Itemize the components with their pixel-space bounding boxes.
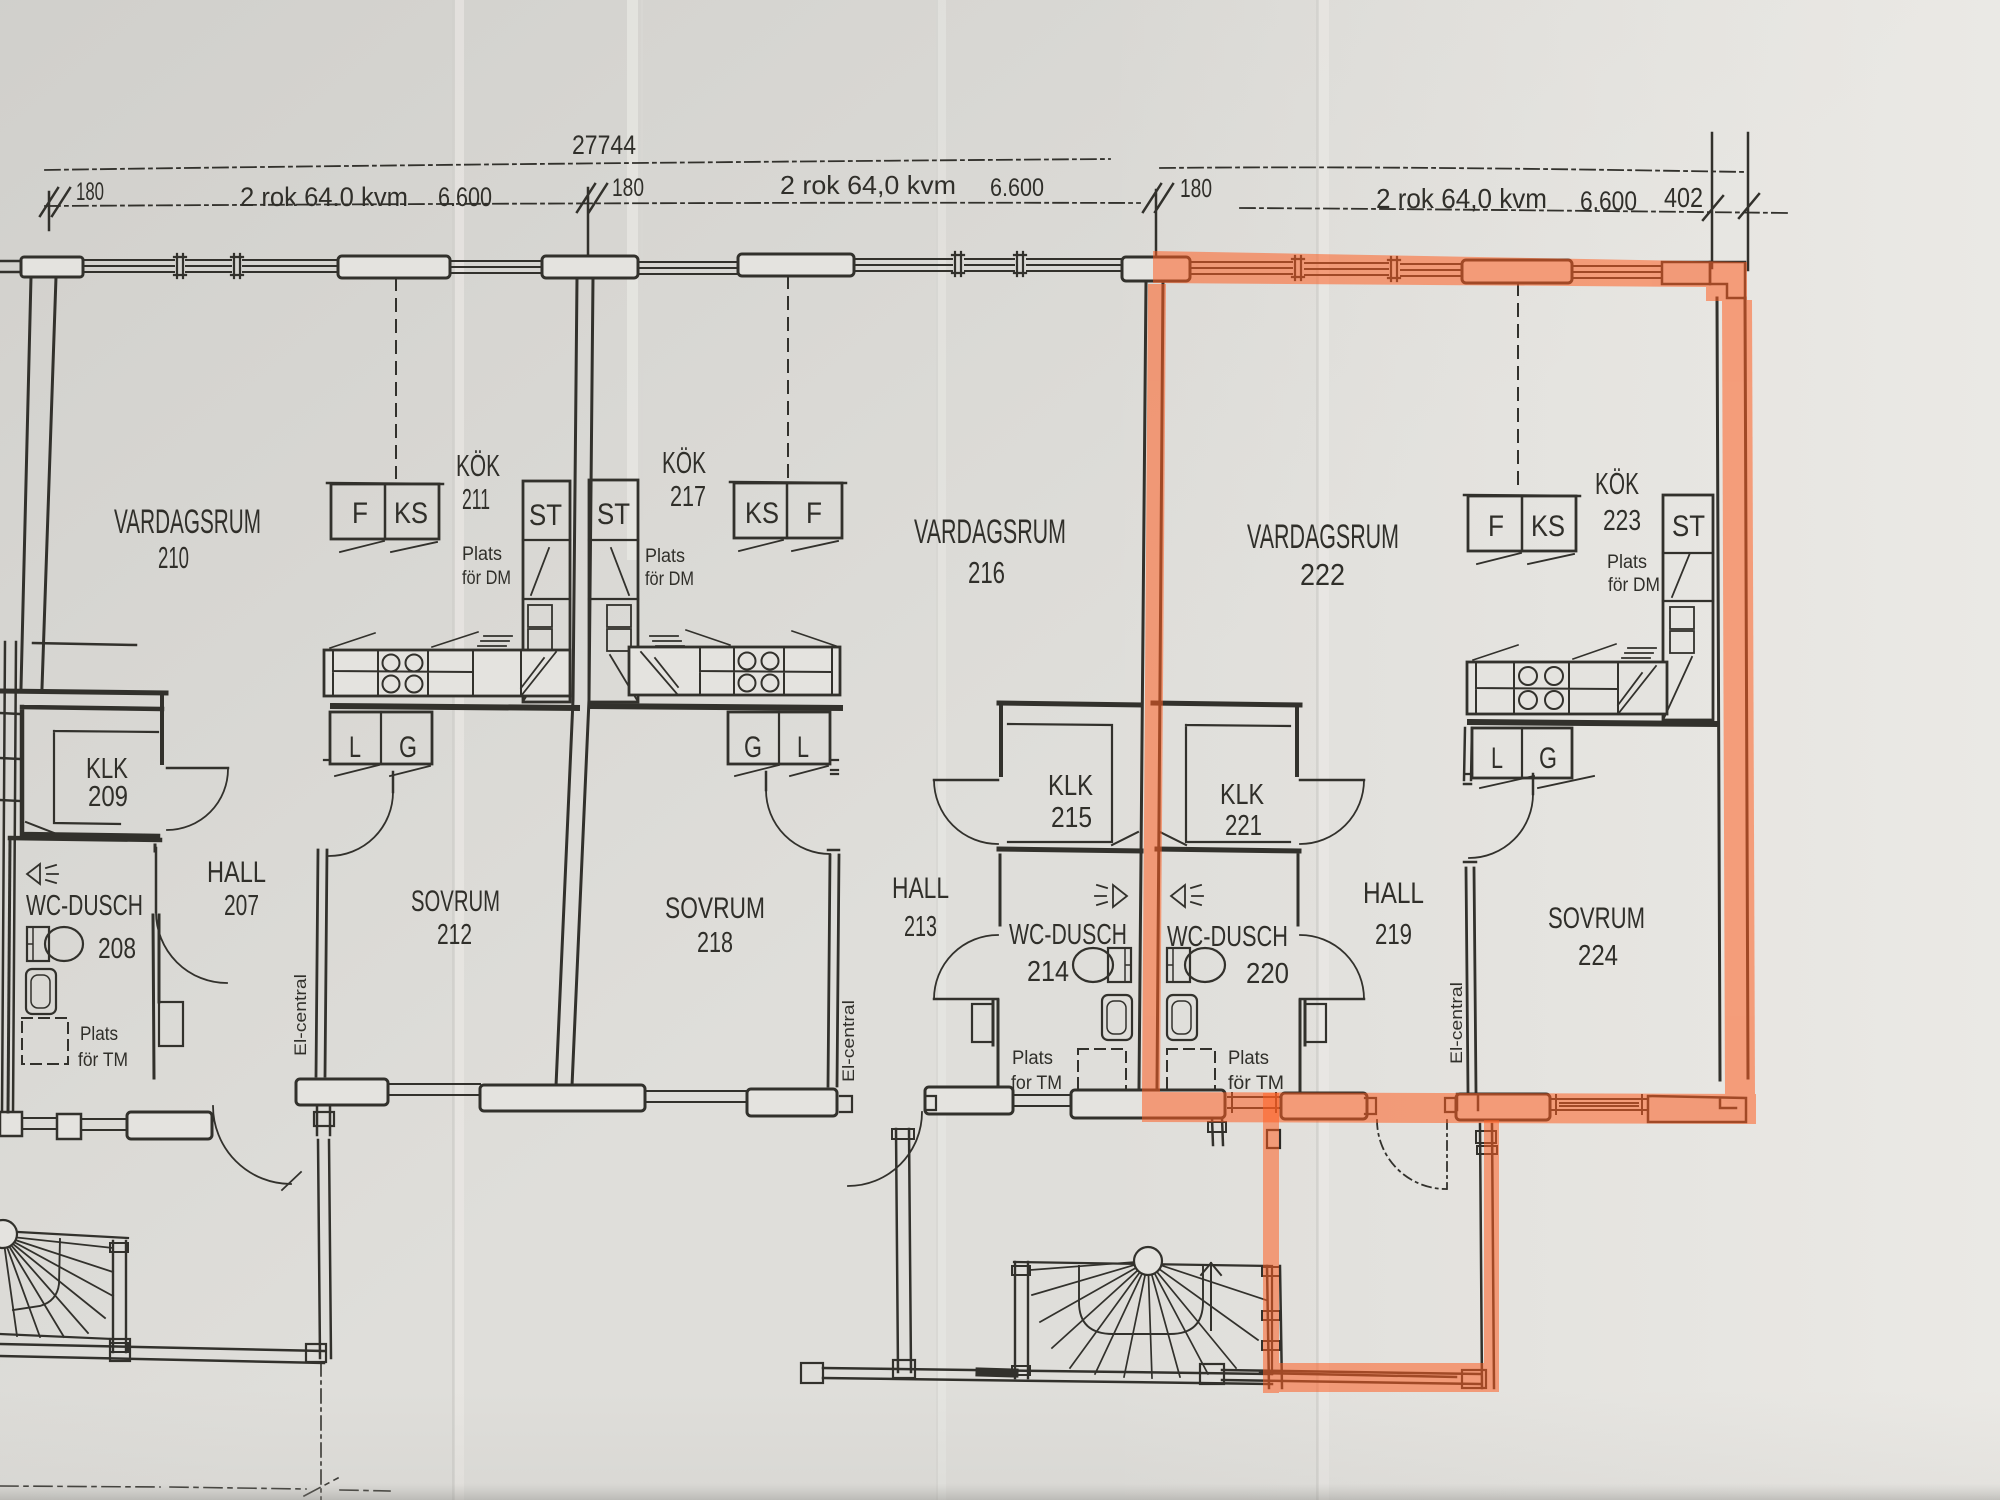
svg-text:223: 223 [1603, 505, 1641, 537]
svg-text:L: L [797, 731, 809, 764]
svg-text:VARDAGSRUM: VARDAGSRUM [114, 503, 261, 541]
svg-text:402: 402 [1664, 182, 1703, 213]
svg-text:för DM: för DM [462, 568, 511, 589]
svg-text:Plats: Plats [1012, 1048, 1053, 1069]
svg-text:Plats: Plats [1607, 552, 1647, 573]
svg-text:KÖK: KÖK [662, 445, 706, 480]
svg-text:SOVRUM: SOVRUM [411, 885, 500, 918]
svg-text:215: 215 [1051, 802, 1092, 834]
svg-text:210: 210 [158, 540, 189, 575]
svg-text:G: G [744, 731, 762, 764]
svg-text:2 rok 64.0 kvm: 2 rok 64.0 kvm [240, 182, 408, 212]
svg-text:208: 208 [98, 933, 136, 965]
svg-text:213: 213 [904, 911, 937, 943]
svg-text:VARDAGSRUM: VARDAGSRUM [914, 513, 1066, 551]
svg-text:219: 219 [1375, 919, 1412, 951]
svg-text:KS: KS [394, 497, 428, 530]
svg-text:180: 180 [76, 178, 104, 206]
svg-text:209: 209 [88, 781, 128, 813]
svg-text:221: 221 [1225, 810, 1262, 842]
svg-text:220: 220 [1246, 958, 1289, 990]
svg-text:216: 216 [968, 555, 1005, 590]
svg-text:KLK: KLK [1048, 770, 1094, 802]
svg-text:6.600: 6.600 [1580, 186, 1637, 216]
svg-text:ST: ST [1672, 510, 1705, 543]
svg-text:F: F [352, 497, 368, 530]
svg-text:SOVRUM: SOVRUM [665, 892, 765, 925]
svg-text:ST: ST [529, 499, 562, 532]
svg-text:för TM: för TM [1228, 1073, 1284, 1094]
svg-text:G: G [399, 731, 417, 764]
svg-text:224: 224 [1578, 940, 1618, 972]
svg-text:El-central: El-central [839, 1000, 858, 1082]
svg-text:L: L [1491, 742, 1503, 775]
svg-text:217: 217 [670, 481, 706, 513]
svg-text:6.600: 6.600 [438, 182, 492, 212]
svg-text:WC-DUSCH: WC-DUSCH [1009, 919, 1127, 951]
svg-text:SOVRUM: SOVRUM [1548, 902, 1645, 935]
svg-text:211: 211 [462, 484, 490, 516]
svg-text:HALL: HALL [892, 872, 949, 905]
svg-text:HALL: HALL [1363, 877, 1424, 910]
svg-text:G: G [1539, 742, 1557, 775]
svg-text:180: 180 [1180, 173, 1212, 203]
svg-text:KS: KS [1531, 510, 1565, 543]
svg-text:Plats: Plats [80, 1024, 118, 1045]
svg-text:Plats: Plats [645, 546, 685, 567]
svg-text:2 rok 64,0 kvm: 2 rok 64,0 kvm [780, 170, 956, 200]
svg-text:för DM: för DM [645, 569, 694, 590]
svg-text:F: F [806, 497, 822, 530]
svg-text:för DM: för DM [1608, 575, 1660, 596]
svg-text:214: 214 [1027, 956, 1069, 988]
svg-text:KÖK: KÖK [456, 448, 500, 483]
svg-text:El-central: El-central [1447, 982, 1466, 1064]
svg-text:KÖK: KÖK [1595, 466, 1639, 501]
svg-text:Plats: Plats [462, 544, 502, 565]
svg-text:L: L [349, 731, 361, 764]
svg-text:222: 222 [1300, 557, 1345, 592]
svg-text:HALL: HALL [207, 856, 266, 889]
svg-text:27744: 27744 [572, 130, 636, 160]
svg-text:El-central: El-central [291, 974, 310, 1056]
svg-text:VARDAGSRUM: VARDAGSRUM [1247, 518, 1399, 556]
svg-text:207: 207 [224, 890, 259, 922]
svg-text:Plats: Plats [1228, 1048, 1269, 1069]
svg-text:WC-DUSCH: WC-DUSCH [26, 890, 143, 922]
svg-text:ST: ST [597, 498, 630, 531]
svg-text:212: 212 [437, 919, 472, 951]
svg-text:2 rok 64,0 kvm: 2 rok 64,0 kvm [1376, 183, 1547, 214]
svg-text:for TM: for TM [1011, 1073, 1062, 1094]
svg-text:180: 180 [612, 174, 644, 202]
svg-text:6.600: 6.600 [990, 174, 1044, 202]
svg-text:F: F [1488, 510, 1504, 543]
svg-text:WC-DUSCH: WC-DUSCH [1167, 921, 1288, 953]
svg-text:218: 218 [697, 927, 733, 959]
svg-text:KLK: KLK [1220, 779, 1265, 811]
svg-text:för TM: för TM [78, 1050, 128, 1071]
svg-text:KS: KS [745, 497, 779, 530]
